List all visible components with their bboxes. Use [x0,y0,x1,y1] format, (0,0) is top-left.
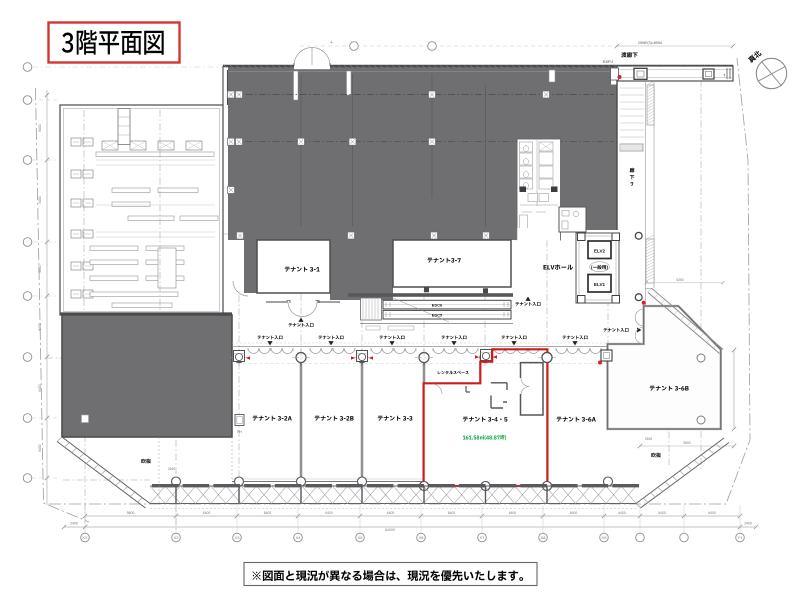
svg-text:ELV2: ELV2 [594,248,606,253]
svg-text:ELV1: ELV1 [594,282,606,287]
svg-text:9600: 9600 [127,511,135,515]
svg-text:6400: 6400 [264,511,272,515]
svg-text:6400: 6400 [38,444,42,451]
svg-text:X8: X8 [541,535,547,540]
svg-text:ESC6: ESC6 [432,303,443,308]
svg-text:6400: 6400 [38,124,42,131]
svg-text:+: + [330,40,333,46]
svg-text:X7: X7 [480,535,486,540]
svg-text:64000: 64000 [385,528,395,532]
svg-text:FH: FH [237,430,242,434]
svg-text:X4: X4 [296,535,302,540]
svg-text:6400: 6400 [708,511,716,515]
svg-text:6400: 6400 [387,511,395,515]
svg-text:6400: 6400 [38,384,42,391]
svg-text:X9: X9 [602,535,608,540]
svg-text:2100: 2100 [168,467,175,471]
svg-text:6400: 6400 [618,511,626,515]
svg-text:6400: 6400 [38,323,42,330]
svg-text:2400: 2400 [70,522,78,526]
svg-text:X3: X3 [235,535,241,540]
svg-text:X5: X5 [358,535,364,540]
svg-text:ESC5: ESC5 [432,313,443,318]
svg-text:X6: X6 [419,535,425,540]
svg-text:2100: 2100 [645,437,652,441]
svg-text:6400: 6400 [325,511,333,515]
svg-text:X2: X2 [174,535,180,540]
svg-text:2400: 2400 [744,522,752,526]
svg-text:EXP.J: EXP.J [603,60,613,64]
svg-text:Y1: Y1 [738,535,744,540]
svg-text:6600: 6600 [38,265,42,272]
svg-text:9600: 9600 [683,441,690,445]
svg-text:X1': X1' [82,535,88,540]
svg-text:6400: 6400 [570,511,578,515]
svg-text:6400: 6400 [658,511,666,515]
svg-text:2998*(3)=8994: 2998*(3)=8994 [638,41,662,45]
svg-text:6400: 6400 [448,511,456,515]
svg-text:6400: 6400 [203,511,211,515]
svg-text:6400: 6400 [509,511,517,515]
svg-text:6250: 6250 [676,278,683,282]
svg-text:9400: 9400 [38,196,42,203]
